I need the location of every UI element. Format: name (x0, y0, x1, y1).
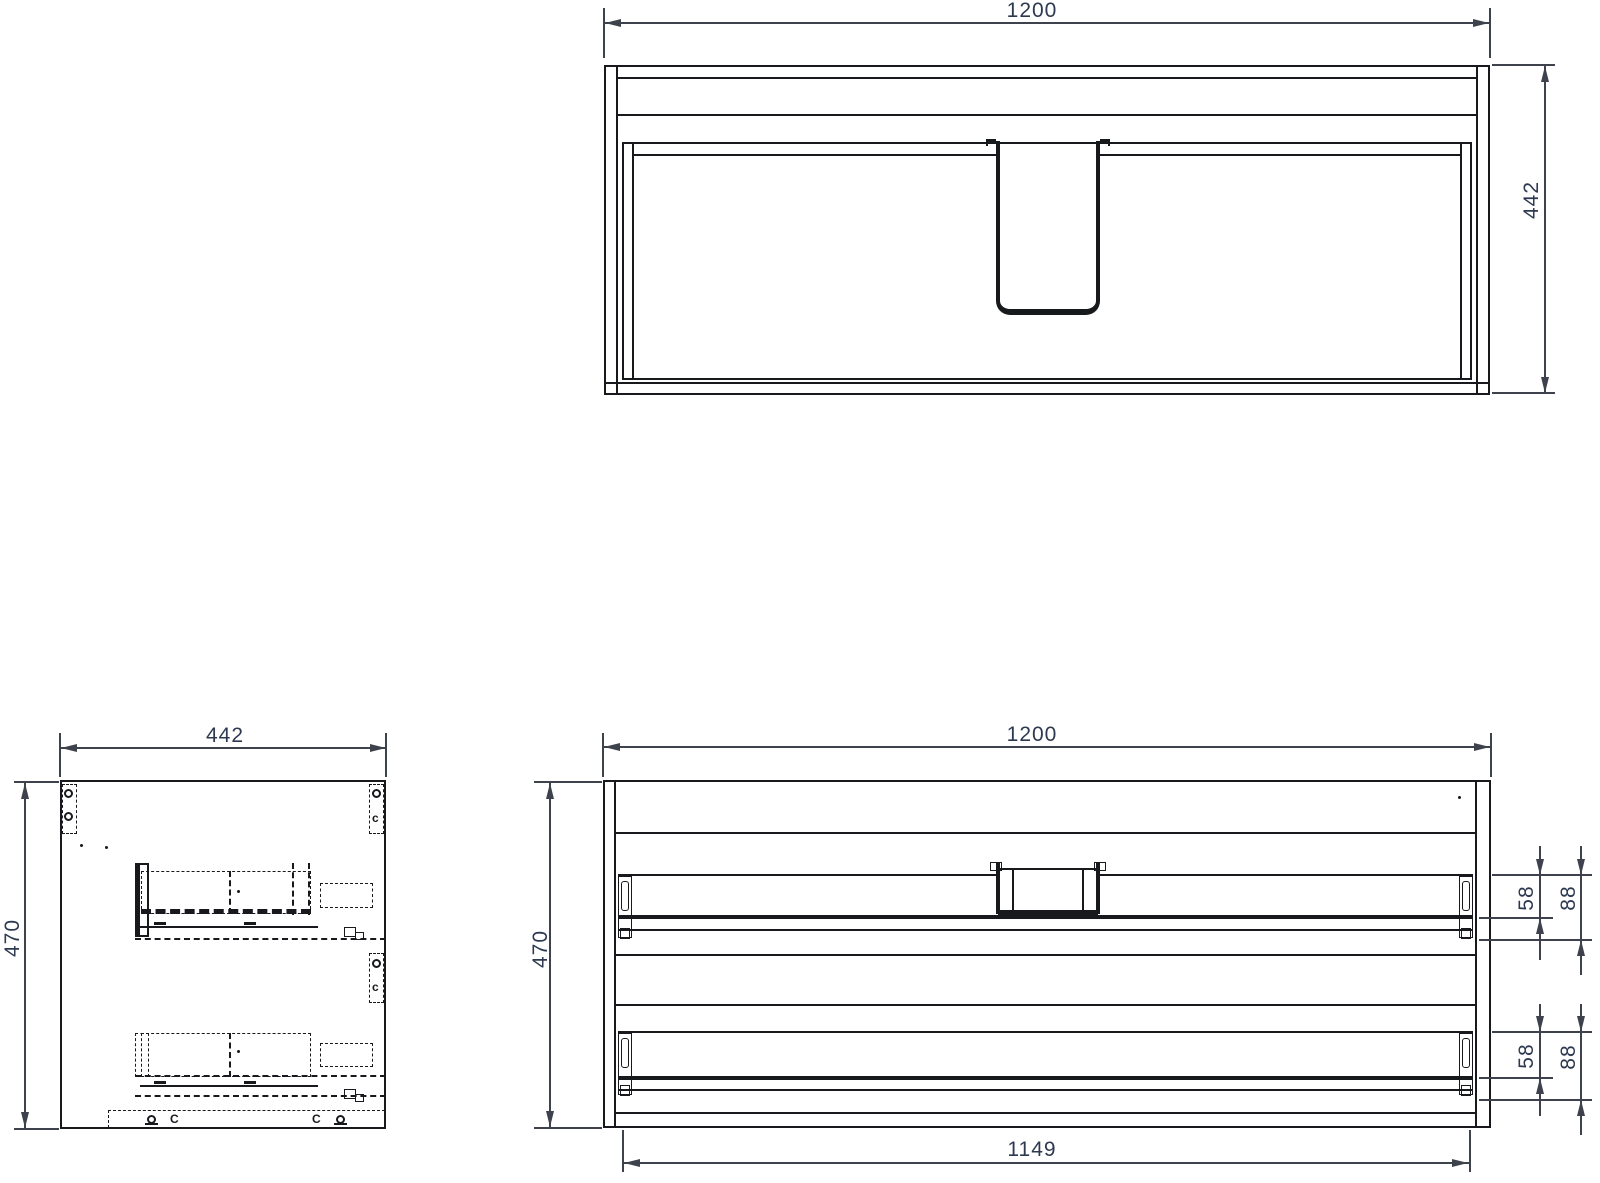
cam-fitting (64, 812, 73, 821)
screw-hole (105, 846, 108, 849)
extension-line (1489, 8, 1491, 58)
bracket-side (1096, 862, 1100, 914)
clip-slot (1462, 881, 1470, 911)
extension-line (59, 733, 61, 777)
clip-slot (621, 1038, 629, 1068)
bottom-panel-line (616, 1112, 1475, 1114)
dimension-line (1544, 65, 1546, 394)
bracket-inner-line (1082, 869, 1084, 913)
dimension-line (60, 747, 387, 749)
dim-arrow (1577, 1016, 1585, 1032)
dim-label: 58 (1516, 1032, 1538, 1080)
cam-mark-label: C (170, 1113, 179, 1125)
extension-line (602, 733, 604, 777)
slide-rail-hidden (141, 909, 311, 914)
dim-arrow (1577, 859, 1585, 875)
dim-arrow (624, 1159, 640, 1167)
rail-clip (355, 932, 364, 940)
dimension-line (24, 782, 26, 1129)
clip-slot (1462, 1038, 1470, 1068)
extension-line (14, 1128, 59, 1130)
bracket-base (998, 910, 1098, 917)
top-rail-line (616, 832, 1475, 834)
drawer-front-line (1098, 154, 1460, 156)
extension-line (1479, 1099, 1592, 1101)
dim-arrow (1536, 859, 1544, 875)
dim-arrow (1577, 1100, 1585, 1116)
dim-arrow (1452, 1159, 1468, 1167)
screw-hole (1458, 796, 1461, 799)
dim-arrow (1541, 66, 1549, 82)
drawer-side-hidden (141, 1033, 311, 1077)
drawer-side-hidden (141, 871, 311, 914)
dim-arrow (370, 744, 386, 752)
dim-label: 1200 (972, 0, 1092, 22)
rail-tab (154, 1081, 166, 1084)
rail-tab (154, 922, 166, 925)
extension-line (534, 1127, 602, 1129)
dim-arrow (1474, 743, 1490, 751)
dim-arrow (546, 1111, 554, 1127)
technical-drawing-canvas: 1200 442 (0, 0, 1600, 1183)
dim-arrow (21, 783, 29, 799)
dimension-line (604, 22, 1490, 24)
rail-hidden-line (135, 1075, 386, 1077)
rail-tab (244, 922, 256, 925)
dim-label: 470 (530, 913, 552, 985)
cam-mark-label: c (372, 981, 379, 993)
clip-foot (1461, 928, 1471, 939)
dim-arrow (546, 783, 554, 799)
drawer-divider-hidden (229, 1033, 231, 1077)
slide-rear-hidden (320, 883, 373, 908)
back-rail-line (617, 114, 1477, 116)
slide-rail-line (140, 926, 318, 928)
extension-line (603, 8, 605, 58)
drawer-side-line (632, 142, 634, 380)
extension-line (534, 781, 602, 783)
dim-label: 88 (1558, 1033, 1580, 1081)
lower-slide-rail (618, 1076, 1473, 1080)
slide-rear-hidden (320, 1043, 373, 1067)
upper-slide-rail-bottom (618, 929, 1473, 931)
rail-clip (355, 1094, 364, 1102)
dim-arrow (1473, 19, 1489, 27)
bracket-top-line (1000, 868, 1096, 870)
dim-arrow (1541, 377, 1549, 393)
extension-line (1469, 1130, 1471, 1172)
lower-slide-rail-bottom (618, 1089, 1473, 1091)
bracket-inner-line (1012, 869, 1014, 913)
dim-label: 442 (175, 725, 275, 747)
drawer-back-hidden (308, 863, 310, 915)
drawer-side-line (1460, 142, 1462, 380)
back-rail-line (617, 77, 1477, 79)
dim-arrow (605, 19, 621, 27)
cutout-hook (1108, 139, 1110, 146)
dim-arrow (61, 744, 77, 752)
rail-tab (244, 1081, 256, 1084)
dim-arrow (21, 1112, 29, 1128)
cam-fitting (372, 959, 381, 968)
clip-foot (1461, 1085, 1471, 1096)
dimension-line (623, 1162, 1470, 1164)
dim-arrow (604, 743, 620, 751)
clip-slot (621, 881, 629, 911)
clip-foot (620, 1085, 630, 1096)
side-panel-line (1475, 780, 1477, 1128)
screw-hole (80, 844, 83, 847)
cutout-hook (986, 139, 988, 146)
extension-line (385, 733, 387, 777)
slide-rail-line (140, 1085, 318, 1087)
screw-hole (237, 1050, 240, 1053)
dim-arrow (1536, 1078, 1544, 1094)
drawer-gap-line (616, 954, 1475, 956)
drawer-front-line (634, 154, 998, 156)
dim-arrow (1536, 1016, 1544, 1032)
dim-label: 442 (1521, 164, 1543, 236)
drawer-gap-line (616, 1004, 1475, 1006)
glide-base (334, 1123, 347, 1125)
dim-label: 58 (1516, 874, 1538, 922)
dimension-line (603, 746, 1492, 748)
upper-drawer-top-line (1100, 874, 1473, 876)
extension-line (1479, 939, 1592, 941)
clip-foot (620, 928, 630, 939)
sink-trap-cutout (996, 141, 1100, 315)
cam-mark-label: c (372, 812, 379, 824)
dim-label: 88 (1558, 874, 1580, 922)
dim-label: 1149 (972, 1139, 1092, 1161)
dim-arrow (1577, 940, 1585, 956)
dim-label: 470 (2, 902, 24, 974)
screw-hole (237, 890, 240, 893)
cam-mark-label: C (312, 1113, 321, 1125)
dim-label: 1200 (972, 724, 1092, 746)
upper-drawer-top-line (618, 874, 996, 876)
drawer-back-hidden (292, 863, 294, 915)
drawer-divider-hidden (229, 871, 231, 914)
glide-base (145, 1123, 158, 1125)
bottom-rail-line (606, 382, 1490, 384)
cam-fitting (372, 789, 381, 798)
lower-drawer-top-line (618, 1031, 1473, 1033)
cam-fitting (64, 789, 73, 798)
rail-hidden-line (135, 938, 386, 940)
extension-line (1490, 733, 1492, 777)
